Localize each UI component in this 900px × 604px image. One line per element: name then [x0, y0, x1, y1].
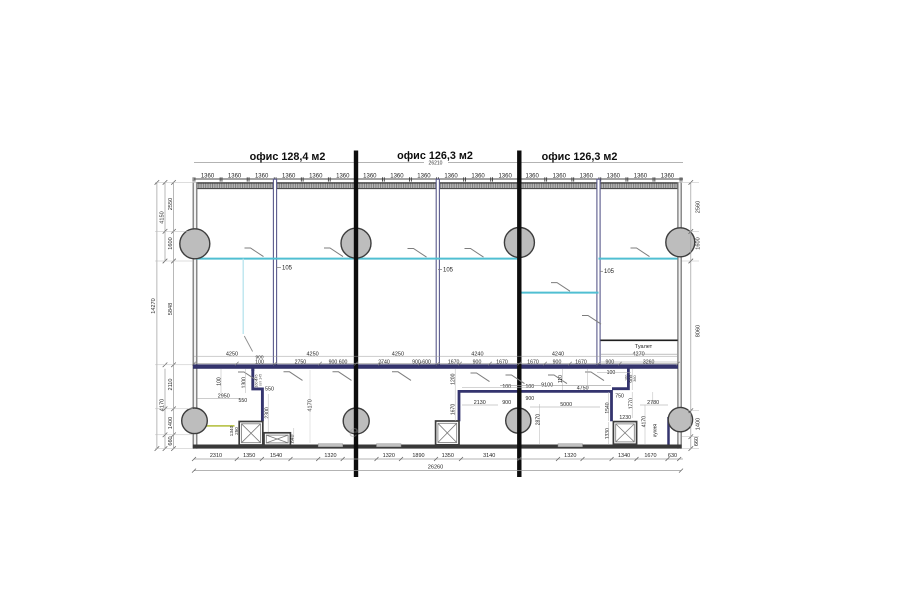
svg-text:1360: 1360 [498, 173, 512, 179]
svg-text:360: 360 [633, 375, 637, 381]
svg-text:250: 250 [234, 427, 239, 435]
svg-text:2300: 2300 [265, 407, 271, 418]
svg-text:1540: 1540 [270, 453, 282, 459]
svg-text:2110: 2110 [168, 378, 174, 390]
svg-text:1320: 1320 [324, 453, 336, 459]
svg-text:1890: 1890 [412, 453, 424, 459]
svg-text:1670: 1670 [575, 359, 587, 365]
svg-text:100: 100 [607, 370, 616, 376]
svg-text:1360: 1360 [553, 173, 567, 179]
svg-text:4240: 4240 [471, 351, 483, 357]
svg-text:110: 110 [558, 375, 564, 383]
svg-text:900: 900 [525, 396, 534, 402]
svg-text:5848: 5848 [168, 303, 174, 315]
svg-text:3260: 3260 [643, 359, 655, 365]
svg-text:4240: 4240 [552, 351, 564, 357]
svg-text:1360: 1360 [282, 173, 296, 179]
svg-text:1670: 1670 [496, 359, 508, 365]
svg-text:4250: 4250 [392, 351, 404, 357]
svg-text:105: 105 [443, 267, 454, 273]
svg-text:4250: 4250 [306, 351, 318, 357]
svg-text:1670: 1670 [527, 359, 539, 365]
svg-text:2310: 2310 [210, 453, 222, 459]
svg-text:26260: 26260 [428, 465, 444, 471]
svg-text:900: 900 [605, 359, 614, 365]
svg-text:100: 100 [525, 384, 534, 390]
svg-text:1670: 1670 [448, 359, 460, 365]
svg-text:1350: 1350 [243, 453, 255, 459]
svg-text:Туалет: Туалет [635, 344, 653, 350]
svg-text:офис 128,4 м2: офис 128,4 м2 [250, 151, 326, 163]
svg-text:9100: 9100 [541, 382, 553, 388]
svg-text:1360: 1360 [336, 173, 350, 179]
svg-text:100: 100 [502, 384, 511, 390]
svg-text:640: 640 [290, 434, 296, 443]
svg-text:1360: 1360 [471, 173, 485, 179]
svg-text:1360: 1360 [363, 173, 377, 179]
svg-text:1360: 1360 [526, 173, 540, 179]
svg-text:кухня: кухня [652, 424, 658, 437]
svg-text:1670: 1670 [451, 404, 457, 415]
svg-text:1330: 1330 [605, 428, 611, 439]
svg-text:1200: 1200 [451, 373, 457, 384]
svg-text:4750: 4750 [577, 385, 589, 391]
svg-text:1400: 1400 [168, 417, 174, 429]
svg-text:105: 105 [604, 269, 615, 275]
svg-text:5000: 5000 [560, 402, 572, 408]
svg-text:550: 550 [238, 398, 247, 404]
svg-text:900: 900 [255, 354, 263, 360]
svg-text:900 600: 900 600 [329, 359, 348, 365]
svg-text:4150: 4150 [159, 211, 165, 223]
svg-text:1320: 1320 [383, 453, 395, 459]
svg-text:2740: 2740 [378, 359, 390, 365]
svg-text:1350: 1350 [442, 453, 454, 459]
svg-text:900: 900 [553, 359, 562, 365]
svg-text:1540: 1540 [605, 402, 611, 413]
svg-text:1360: 1360 [634, 173, 648, 179]
svg-text:1600: 1600 [695, 237, 701, 249]
svg-text:офис 126,3 м2: офис 126,3 м2 [397, 150, 473, 162]
svg-text:100: 100 [217, 377, 223, 386]
svg-text:105: 105 [282, 265, 293, 271]
svg-text:1360: 1360 [417, 173, 431, 179]
svg-text:900: 900 [473, 359, 482, 365]
svg-text:1770: 1770 [629, 398, 635, 409]
svg-text:1360: 1360 [201, 173, 215, 179]
svg-text:900: 900 [502, 400, 511, 406]
svg-text:4170: 4170 [307, 399, 313, 411]
svg-text:1400: 1400 [695, 418, 701, 430]
svg-text:1300: 1300 [242, 377, 248, 388]
svg-text:550: 550 [265, 386, 274, 392]
svg-text:1360: 1360 [444, 173, 458, 179]
svg-text:1360: 1360 [390, 173, 404, 179]
svg-text:2750: 2750 [295, 359, 307, 365]
svg-text:1320: 1320 [564, 453, 576, 459]
svg-text:1360: 1360 [661, 173, 675, 179]
svg-text:630: 630 [668, 453, 677, 459]
svg-text:750: 750 [615, 394, 624, 400]
svg-text:4170: 4170 [641, 416, 647, 427]
svg-text:1360: 1360 [228, 173, 242, 179]
svg-text:14270: 14270 [151, 298, 157, 314]
svg-text:офис 126,3 м2: офис 126,3 м2 [542, 151, 618, 163]
svg-text:3140: 3140 [483, 453, 495, 459]
svg-text:660: 660 [168, 436, 174, 445]
svg-text:2870: 2870 [536, 414, 542, 425]
svg-text:1340: 1340 [618, 453, 630, 459]
svg-text:2560: 2560 [695, 201, 701, 213]
svg-text:1670: 1670 [644, 453, 656, 459]
svg-text:4250: 4250 [226, 351, 238, 357]
svg-text:1360: 1360 [580, 173, 594, 179]
svg-text:660: 660 [694, 437, 700, 446]
svg-text:1360: 1360 [255, 173, 269, 179]
svg-text:e: e [349, 422, 358, 441]
svg-text:160: 160 [625, 375, 629, 381]
svg-text:1360: 1360 [309, 173, 323, 179]
svg-text:сет 145: сет 145 [259, 374, 263, 386]
svg-text:1360: 1360 [607, 173, 621, 179]
svg-text:2550: 2550 [168, 198, 174, 210]
svg-text:1600: 1600 [168, 237, 174, 249]
svg-text:1230: 1230 [619, 415, 631, 421]
svg-text:8060: 8060 [695, 325, 701, 337]
